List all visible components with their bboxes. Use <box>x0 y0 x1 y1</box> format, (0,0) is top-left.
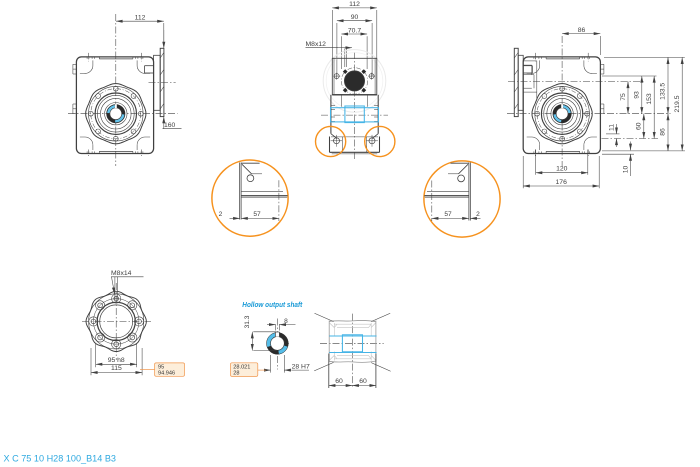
svg-text:28.021: 28.021 <box>233 364 250 370</box>
svg-text:112: 112 <box>135 14 146 21</box>
svg-text:90: 90 <box>351 14 359 21</box>
svg-text:57: 57 <box>444 211 452 218</box>
svg-text:60: 60 <box>359 378 367 385</box>
svg-text:86: 86 <box>660 128 667 136</box>
svg-text:M8x14: M8x14 <box>111 270 132 277</box>
svg-text:115: 115 <box>111 365 122 372</box>
svg-text:2: 2 <box>476 211 480 218</box>
svg-text:8: 8 <box>284 318 288 325</box>
svg-text:31.3: 31.3 <box>244 315 251 328</box>
svg-text:153: 153 <box>646 93 653 105</box>
svg-text:86: 86 <box>578 27 586 34</box>
svg-text:M8x12: M8x12 <box>306 41 327 48</box>
svg-text:57: 57 <box>253 211 261 218</box>
svg-text:X C 75 10 H28 100_B14 B3: X C 75 10 H28 100_B14 B3 <box>4 454 117 464</box>
svg-text:Hollow output shaft: Hollow output shaft <box>242 302 303 309</box>
svg-text:60: 60 <box>335 378 343 385</box>
svg-text:28: 28 <box>233 371 239 377</box>
svg-text:219.5: 219.5 <box>674 95 681 112</box>
svg-text:176: 176 <box>556 179 568 186</box>
svg-text:112: 112 <box>349 1 360 8</box>
svg-text:160: 160 <box>164 122 176 129</box>
svg-text:95 h8: 95 h8 <box>108 357 125 364</box>
svg-text:28 H7: 28 H7 <box>292 364 310 371</box>
svg-text:11: 11 <box>609 124 616 131</box>
svg-text:94.946: 94.946 <box>158 370 175 376</box>
svg-text:60: 60 <box>635 122 642 130</box>
svg-text:120: 120 <box>556 166 568 173</box>
svg-text:133.5: 133.5 <box>660 83 667 100</box>
svg-text:70.7: 70.7 <box>348 27 361 34</box>
svg-text:75: 75 <box>620 93 627 101</box>
svg-text:10: 10 <box>623 166 630 174</box>
svg-text:93: 93 <box>633 91 640 99</box>
svg-text:2: 2 <box>219 211 223 218</box>
